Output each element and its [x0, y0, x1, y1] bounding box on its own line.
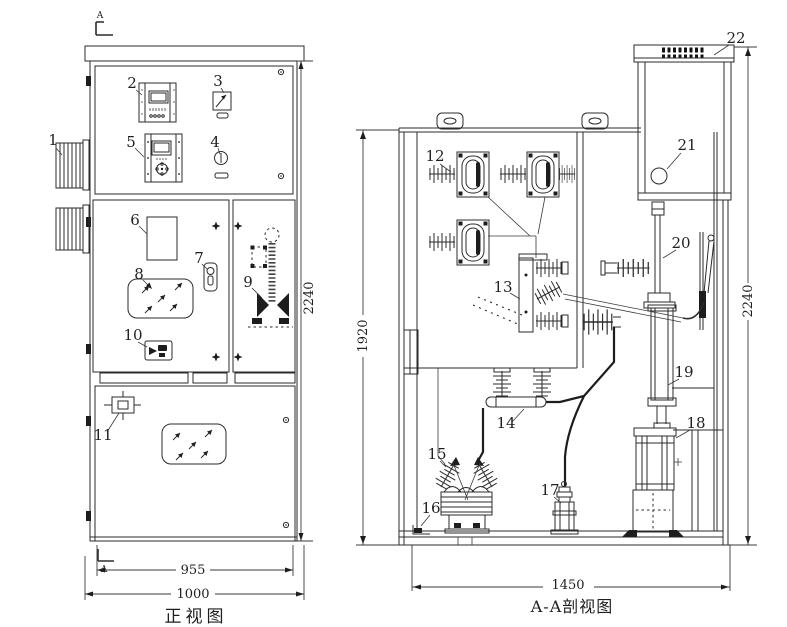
dim-front-width: 1000	[176, 587, 209, 602]
part-label-2: 2	[127, 74, 137, 92]
section-marker-top: A	[96, 11, 113, 35]
part-label-21: 21	[677, 136, 696, 154]
vent-strip	[100, 373, 295, 383]
panel-bolt-icon	[234, 353, 243, 362]
wall-bushing	[583, 259, 650, 335]
part-label-15: 15	[427, 445, 446, 463]
dim-front-height: 2240	[302, 281, 317, 314]
panel-bolt-icon	[234, 222, 243, 231]
control-switch	[215, 152, 229, 179]
part-label-17: 17	[540, 481, 559, 499]
dim-section-depth: 1450	[551, 578, 584, 593]
operating-hole	[104, 391, 141, 420]
part-label-19: 19	[674, 363, 693, 381]
interlock-mechanism	[248, 228, 293, 327]
screw-icon	[278, 69, 283, 74]
instrument-door	[95, 66, 293, 194]
part-label-13: 13	[493, 278, 512, 296]
branch-bushings	[429, 152, 575, 265]
dim-section-height: 2240	[741, 284, 756, 317]
insulator-column	[648, 305, 676, 428]
energy-indicator	[145, 341, 172, 360]
part-label-16: 16	[421, 499, 440, 517]
protection-relay-upper	[139, 83, 176, 122]
nameplate	[147, 217, 177, 260]
voltage-transformer	[433, 457, 500, 545]
technical-drawing: A	[0, 0, 787, 627]
screw-icon	[283, 522, 288, 527]
panel-bolt-icon	[212, 353, 221, 362]
section-letter-top: A	[96, 11, 104, 21]
part-label-11: 11	[93, 426, 112, 444]
part-label-7: 7	[194, 249, 204, 267]
dim-front-2240: 2240	[297, 61, 317, 541]
dim-front-955: 955	[97, 545, 293, 578]
circuit-breaker	[473, 254, 568, 332]
part-label-10: 10	[123, 326, 142, 344]
panel-bolt-icon	[212, 222, 221, 231]
part-label-6: 6	[130, 211, 140, 229]
door-handle	[204, 263, 217, 291]
part-label-1: 1	[48, 131, 58, 149]
dim-section-1450: 1450	[412, 545, 730, 593]
middle-doors	[93, 200, 295, 372]
part-label-8: 8	[134, 265, 144, 283]
dim-section-1920: 1920	[356, 130, 399, 545]
protection-relay-lower	[145, 134, 182, 182]
racking-path	[473, 297, 522, 325]
section-view: 1920 2240 1450 A-A剖视图 12 13 14 15 16 17 …	[356, 29, 757, 616]
insulated-rod	[644, 202, 675, 308]
part-label-14: 14	[496, 414, 515, 432]
part-label-18: 18	[686, 414, 705, 432]
part-label-12: 12	[425, 147, 444, 165]
current-transformer	[622, 428, 684, 537]
screw-icon	[283, 417, 288, 422]
part-label-9: 9	[243, 273, 253, 291]
dim-section-inner-height: 1920	[356, 319, 371, 352]
part-label-3: 3	[213, 72, 223, 90]
observation-window-mid	[128, 279, 193, 318]
earthing-bracket	[413, 525, 430, 534]
contact-assembly	[486, 368, 551, 407]
front-view: A	[48, 11, 317, 627]
part-label-20: 20	[671, 234, 690, 252]
front-part-labels: 1 2 3 4 5 6 7 8 9 10 11	[48, 72, 262, 444]
lv-box-hole	[651, 168, 667, 184]
section-view-caption: A-A剖视图	[530, 597, 614, 616]
panel-meter	[213, 92, 231, 118]
cable-bellows	[56, 140, 89, 253]
section-marker-bottom: A	[98, 549, 114, 575]
dim-front-inner-width: 955	[181, 563, 206, 578]
front-view-caption: 正视图	[165, 607, 228, 627]
screw-icon	[278, 173, 283, 178]
part-label-22: 22	[726, 29, 745, 47]
dim-section-2240: 2240	[732, 47, 757, 545]
part-label-4: 4	[210, 133, 220, 151]
part-label-5: 5	[126, 133, 136, 151]
lv-compartment	[634, 45, 734, 200]
